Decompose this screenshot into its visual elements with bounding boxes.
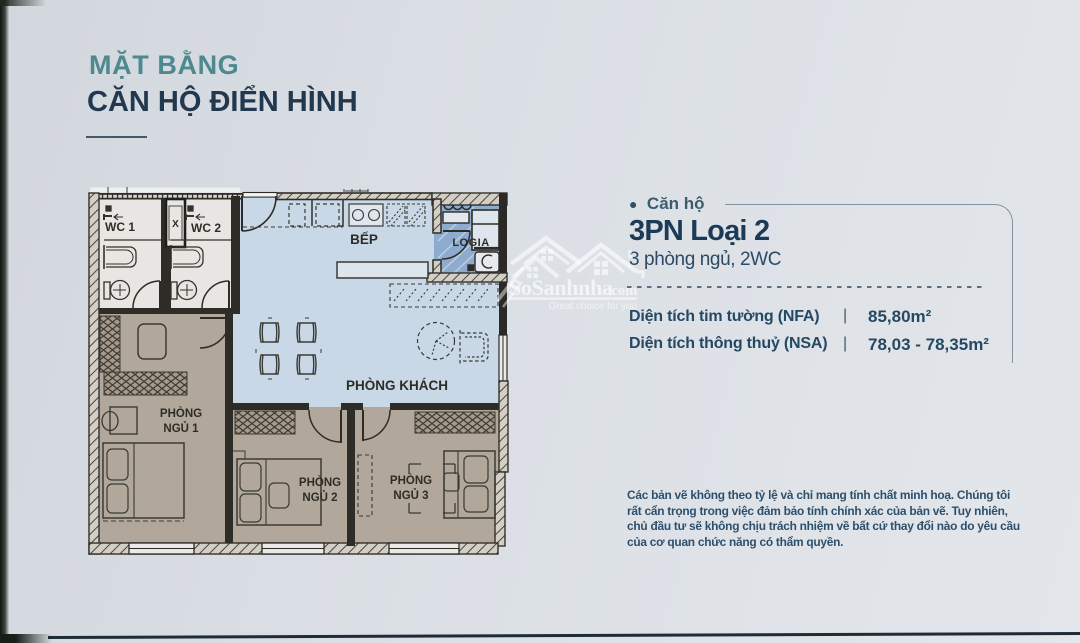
svg-text:PHÒNG: PHÒNG (299, 476, 341, 489)
svg-text:LOGIA: LOGIA (452, 237, 489, 249)
svg-text:SoSanhnha: SoSanhnha (509, 275, 613, 300)
svg-text:BẾP: BẾP (350, 232, 378, 247)
svg-text:WC 1: WC 1 (105, 220, 135, 234)
svg-text:.com: .com (608, 283, 637, 299)
svg-text:WC 2: WC 2 (191, 221, 221, 235)
svg-text:NGỦ 3: NGỦ 3 (393, 489, 428, 502)
svg-text:PHÒNG: PHÒNG (160, 407, 202, 420)
svg-text:PHÒNG KHÁCH: PHÒNG KHÁCH (346, 378, 448, 393)
svg-text:X: X (172, 219, 179, 230)
svg-text:NGỦ 2: NGỦ 2 (302, 491, 337, 504)
svg-text:NGỦ 1: NGỦ 1 (163, 422, 199, 435)
svg-text:PHÒNG: PHÒNG (390, 474, 432, 487)
svg-text:Great choice for you: Great choice for you (549, 301, 637, 312)
